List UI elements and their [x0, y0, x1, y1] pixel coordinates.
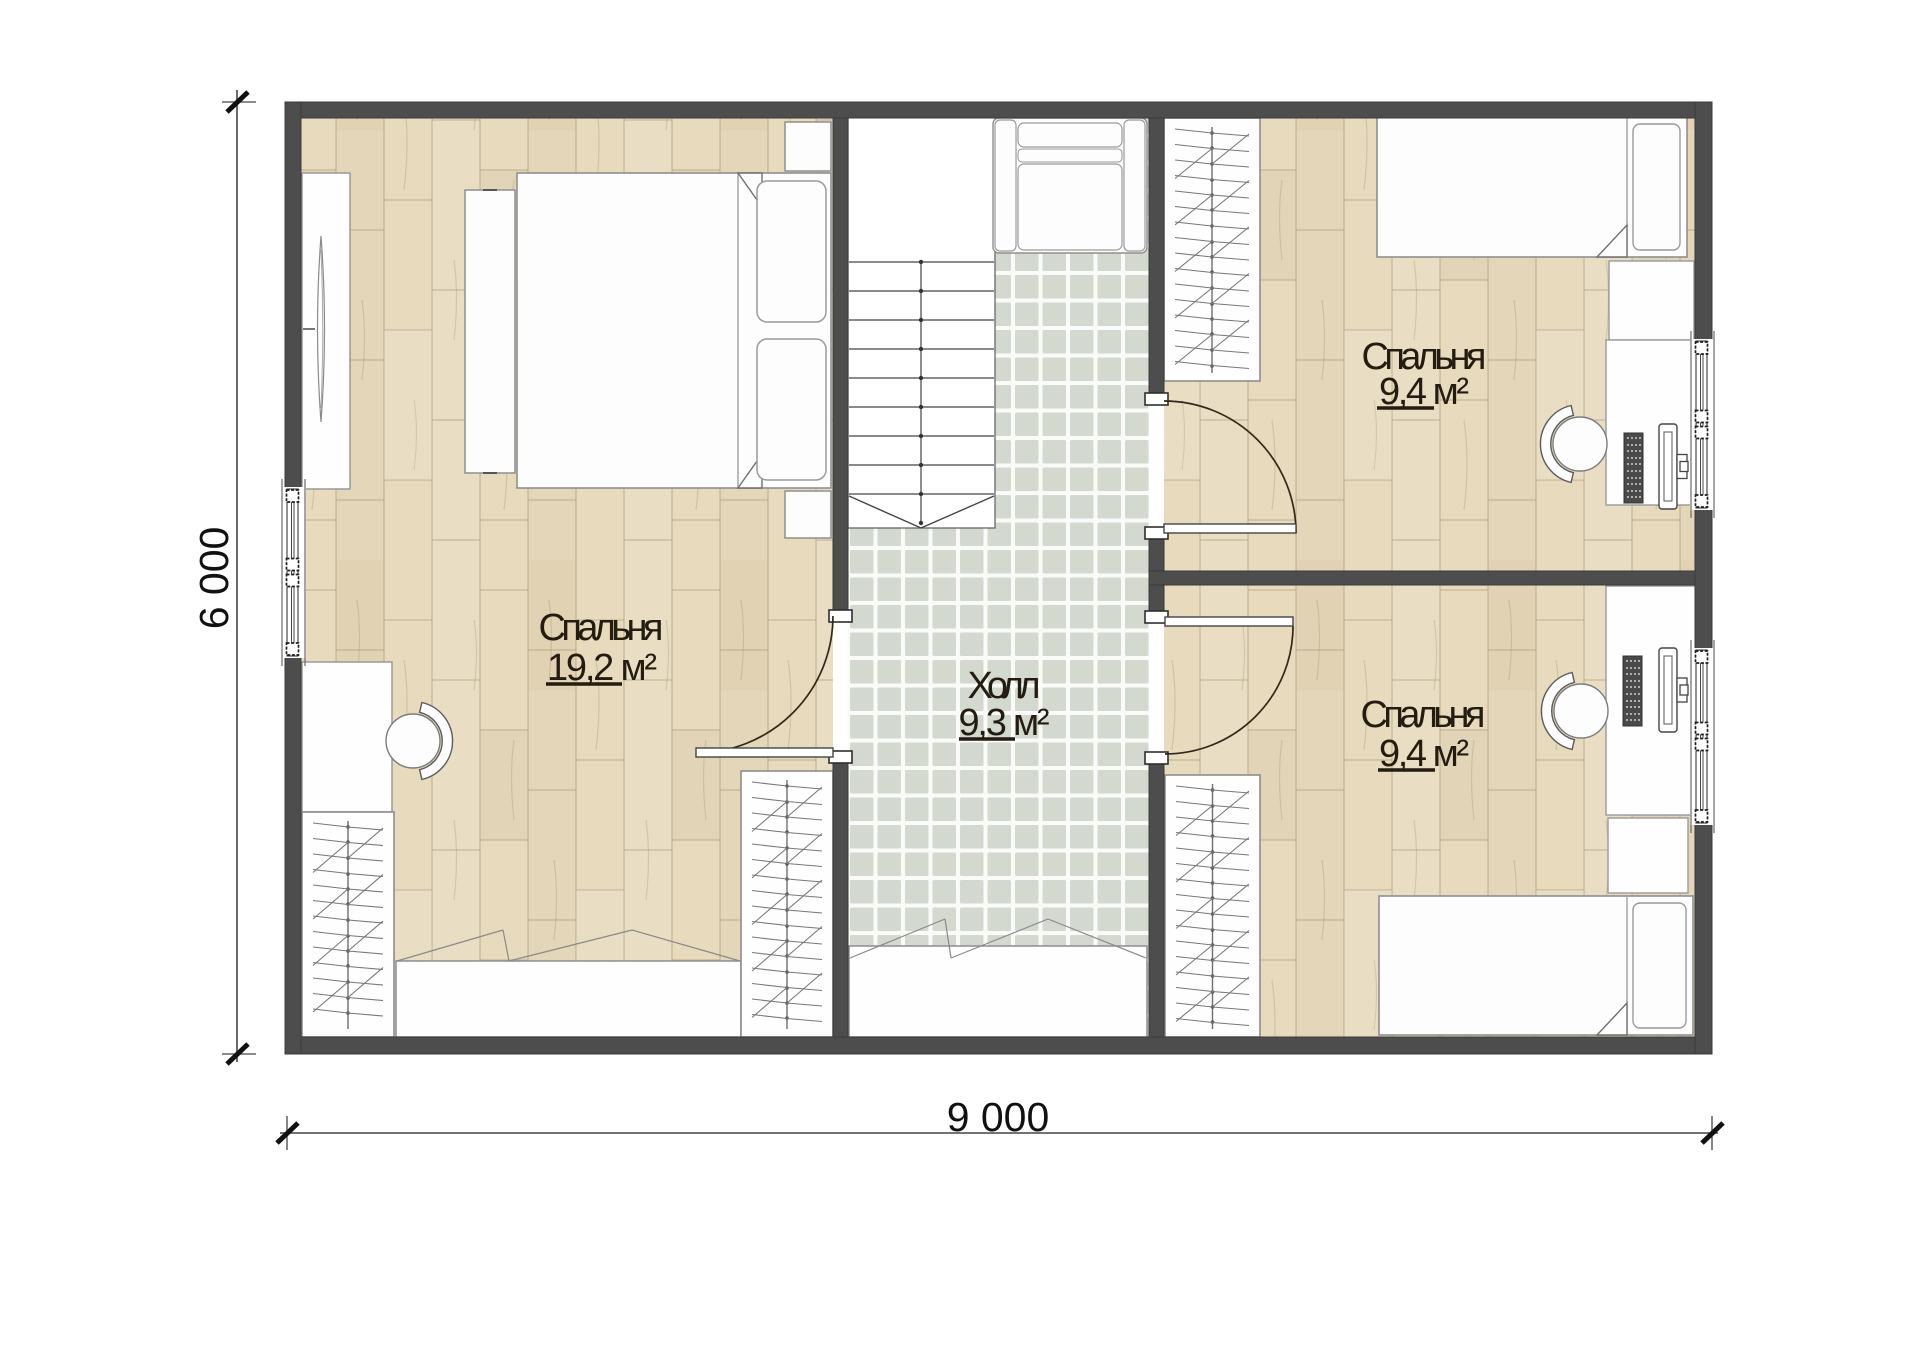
svg-text:Спальня: Спальня: [539, 607, 664, 649]
svg-text:6 000: 6 000: [191, 527, 237, 630]
svg-text:Холл: Холл: [968, 665, 1041, 707]
svg-text:Спальня: Спальня: [1361, 694, 1486, 736]
svg-text:9 000: 9 000: [947, 1094, 1050, 1140]
